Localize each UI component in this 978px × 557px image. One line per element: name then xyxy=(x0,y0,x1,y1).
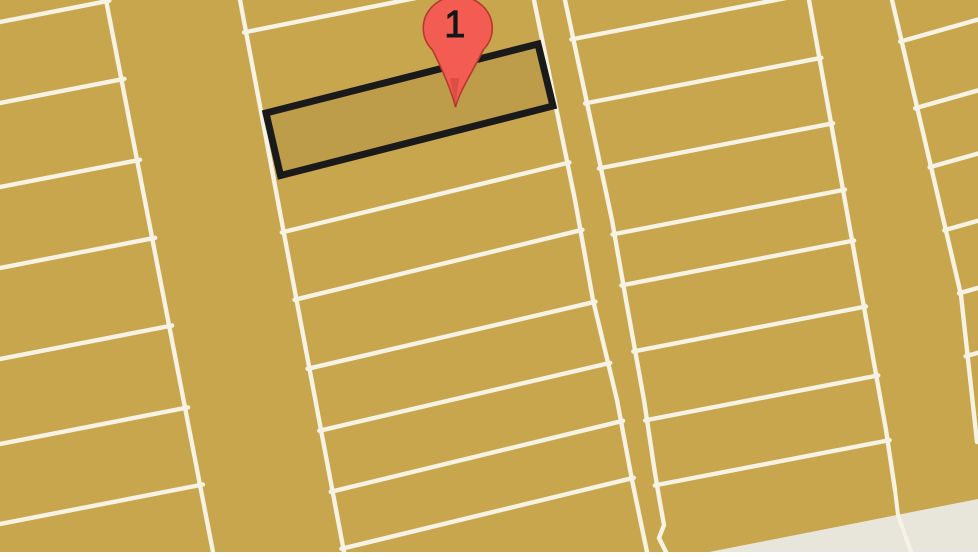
svg-text:1: 1 xyxy=(444,4,465,46)
